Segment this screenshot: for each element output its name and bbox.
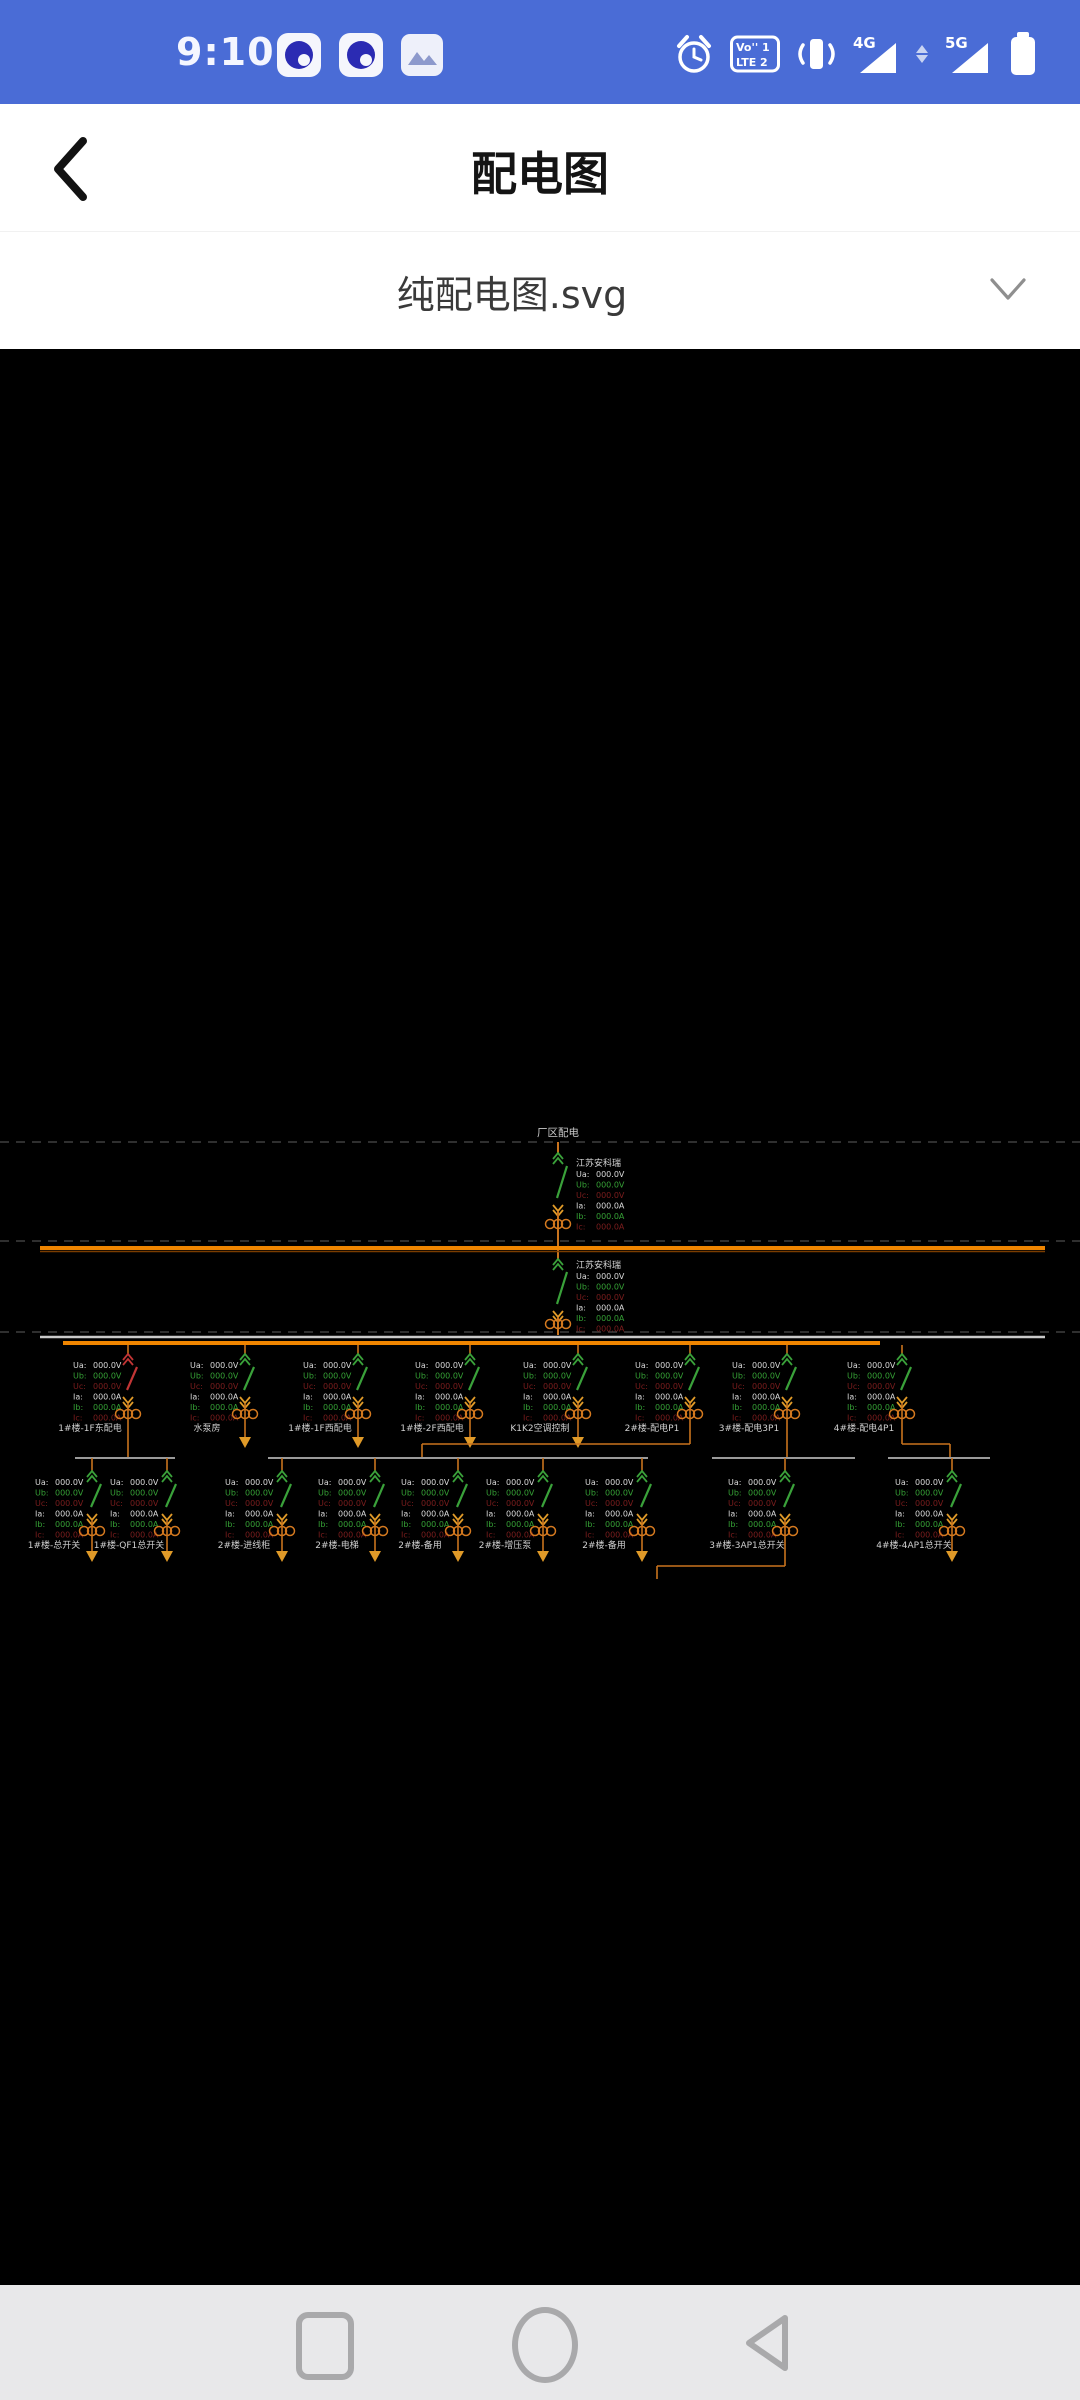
feeder-reading-key: Ic: (190, 1414, 199, 1423)
feeder-reading-key: Uc: (732, 1382, 745, 1391)
incomer-reading-value: 000.0A (596, 1314, 625, 1323)
app-header: 配电图 纯配电图.svg (0, 104, 1080, 349)
feeder-label: 1#楼-总开关 (28, 1539, 81, 1551)
incomer-reading-key: Ub: (576, 1283, 590, 1292)
feeder-reading-value: 000.0A (421, 1510, 450, 1519)
back-nav-button[interactable] (737, 2310, 797, 2376)
feeder-reading-key: Ia: (486, 1510, 496, 1519)
chevron-up-icon (780, 1471, 790, 1482)
feeder-reading-key: Ic: (486, 1531, 495, 1540)
source-title: 厂区配电 (537, 1126, 579, 1139)
feeder-label: 2#楼-增压泵 (479, 1539, 532, 1551)
feeder-reading-value: 000.0V (748, 1499, 777, 1508)
signal-5g-icon: 5G (944, 31, 992, 77)
chevron-up-icon (897, 1354, 907, 1365)
feeder-reading-key: Ub: (732, 1372, 746, 1381)
feeder-reading-key: Ib: (303, 1403, 313, 1412)
feeder-reading-key: Ua: (401, 1478, 414, 1487)
feeder-label: 1#楼-1F东配电 (58, 1422, 121, 1434)
flow-arrow-icon (464, 1437, 476, 1448)
incomer-reading-key: Ua: (576, 1170, 589, 1179)
feeder-reading-value: 000.0V (655, 1382, 684, 1391)
incomer-reading-key: Uc: (576, 1191, 589, 1200)
feeder-reading-key: Ua: (190, 1361, 203, 1370)
incomer-reading-value: 000.0V (596, 1191, 625, 1200)
chevron-up-icon (162, 1471, 172, 1482)
feeder-label: 3#楼-配电3P1 (719, 1422, 779, 1434)
feeder-reading-value: 000.0V (748, 1489, 777, 1498)
incomer-reading-value: 000.0V (596, 1181, 625, 1190)
feeder-reading-key: Ub: (303, 1372, 317, 1381)
incomer-reading-key: Ua: (576, 1272, 589, 1281)
feeder-reading-key: Ub: (318, 1489, 332, 1498)
feeder-reading-key: Ic: (415, 1414, 424, 1423)
feeder-reading-value: 000.0A (323, 1393, 352, 1402)
feeder-reading-key: Ub: (35, 1489, 49, 1498)
feeder-reading-key: Ub: (847, 1372, 861, 1381)
feeder-reading-value: 000.0V (506, 1478, 535, 1487)
chevron-up-icon (782, 1354, 792, 1365)
feeder-reading-key: Ib: (110, 1520, 120, 1529)
breaker-blade (469, 1367, 479, 1390)
feeder-reading-key: Uc: (523, 1382, 536, 1391)
incomer-reading-value: 000.0V (596, 1293, 625, 1302)
feeder-reading-value: 000.0V (338, 1489, 367, 1498)
breaker-blade (689, 1367, 699, 1390)
feeder-reading-key: Ic: (401, 1531, 410, 1540)
feeder-reading-key: Ia: (401, 1510, 411, 1519)
chevron-up-icon (637, 1471, 647, 1482)
feeder-reading-value: 000.0V (421, 1478, 450, 1487)
vibrate-icon (794, 31, 838, 77)
feeder-reading-value: 000.0V (655, 1372, 684, 1381)
feeder-reading-value: 000.0A (245, 1520, 274, 1529)
flow-arrow-icon (636, 1551, 648, 1562)
feeder-reading-value: 000.0V (752, 1361, 781, 1370)
feeder-reading-value: 000.0A (748, 1510, 777, 1519)
chevron-up-icon (87, 1471, 97, 1482)
incomer-reading-value: 000.0V (596, 1170, 625, 1179)
feeder-reading-key: Ic: (73, 1414, 82, 1423)
incomer-reading-value: 000.0V (596, 1283, 625, 1292)
flow-arrow-icon (239, 1437, 251, 1448)
feeder-reading-key: Ub: (190, 1372, 204, 1381)
feeder-reading-value: 000.0A (506, 1510, 535, 1519)
feeder-reading-value: 000.0A (55, 1510, 84, 1519)
feeder-label: 2#楼-电梯 (315, 1539, 359, 1551)
feeder-reading-key: Ua: (225, 1478, 238, 1487)
feeder-reading-key: Ib: (318, 1520, 328, 1529)
feeder-reading-value: 000.0A (752, 1393, 781, 1402)
diagram-viewer[interactable]: 厂区配电江苏安科瑞Ua:000.0VUb:000.0VUc:000.0VIa:0… (0, 349, 1080, 2285)
feeder-reading-value: 000.0V (55, 1478, 84, 1487)
feeder-reading-value: 000.0V (323, 1361, 352, 1370)
feeder-reading-value: 000.0A (435, 1393, 464, 1402)
signal-4g-icon: 4G (852, 31, 900, 77)
vendor-label: 江苏安科瑞 (576, 1157, 621, 1169)
incomer-reading-value: 000.0A (596, 1212, 625, 1221)
incomer-reading-key: Uc: (576, 1293, 589, 1302)
feeder-label: K1K2空调控制 (510, 1422, 569, 1434)
incomer-reading-key: Ia: (576, 1304, 586, 1313)
feeder-reading-value: 000.0A (338, 1510, 367, 1519)
feeder-reading-key: Ub: (73, 1372, 87, 1381)
home-button[interactable] (512, 2307, 578, 2383)
feeder-reading-key: Ic: (318, 1531, 327, 1540)
feeder-reading-key: Ic: (110, 1531, 119, 1540)
feeder-reading-key: Ib: (732, 1403, 742, 1412)
feeder-reading-key: Ub: (635, 1372, 649, 1381)
breaker-blade (166, 1484, 176, 1507)
feeder-reading-key: Ic: (523, 1414, 532, 1423)
feeder-reading-value: 000.0V (130, 1478, 159, 1487)
flow-arrow-icon (369, 1551, 381, 1562)
feeder-reading-value: 000.0A (748, 1520, 777, 1529)
chevron-up-icon (277, 1471, 287, 1482)
feeder-reading-key: Ib: (486, 1520, 496, 1529)
incomer-reading-key: Ib: (576, 1212, 586, 1221)
feeder-reading-key: Ua: (486, 1478, 499, 1487)
feeder-reading-value: 000.0V (543, 1361, 572, 1370)
feeder-reading-value: 000.0V (55, 1499, 84, 1508)
flow-arrow-icon (161, 1551, 173, 1562)
feeder-reading-key: Ub: (110, 1489, 124, 1498)
feeder-reading-value: 000.0V (915, 1489, 944, 1498)
feeder-reading-key: Ib: (728, 1520, 738, 1529)
feeder-reading-key: Uc: (401, 1499, 414, 1508)
feeder-reading-key: Ib: (73, 1403, 83, 1412)
feeder-reading-key: Ua: (73, 1361, 86, 1370)
file-selector-value: 纯配电图.svg (0, 264, 1052, 319)
feeder-reading-key: Uc: (728, 1499, 741, 1508)
feeder-reading-value: 000.0V (435, 1372, 464, 1381)
feeder-reading-key: Uc: (110, 1499, 123, 1508)
feeder-reading-key: Uc: (585, 1499, 598, 1508)
chevron-up-icon (123, 1354, 133, 1365)
feeder-reading-key: Ua: (523, 1361, 536, 1370)
feeder-reading-key: Ua: (415, 1361, 428, 1370)
feeder-reading-key: Ib: (585, 1520, 595, 1529)
feeder-reading-value: 000.0V (915, 1499, 944, 1508)
feeder-reading-value: 000.0V (130, 1499, 159, 1508)
feeder-reading-value: 000.0V (338, 1499, 367, 1508)
feeder-reading-key: Ub: (401, 1489, 415, 1498)
feeder-reading-key: Ia: (318, 1510, 328, 1519)
feeder-reading-key: Ia: (847, 1393, 857, 1402)
volte-icon: Vo'' 1 LTE 2 (730, 31, 780, 77)
feeder-reading-value: 000.0V (55, 1489, 84, 1498)
feeder-reading-value: 000.0A (93, 1393, 122, 1402)
feeder-reading-value: 000.0V (210, 1361, 239, 1370)
feeder-reading-value: 000.0V (93, 1382, 122, 1391)
breaker-blade (281, 1484, 291, 1507)
feeder-reading-key: Ia: (225, 1510, 235, 1519)
feeder-reading-value: 000.0V (210, 1372, 239, 1381)
feeder-reading-value: 000.0A (915, 1510, 944, 1519)
breaker-blade (374, 1484, 384, 1507)
feeder-reading-value: 000.0V (435, 1361, 464, 1370)
feeder-reading-key: Ic: (895, 1531, 904, 1540)
feeder-reading-key: Ic: (635, 1414, 644, 1423)
feeder-reading-key: Ia: (73, 1393, 83, 1402)
feeder-reading-value: 000.0A (915, 1520, 944, 1529)
feeder-reading-key: Uc: (486, 1499, 499, 1508)
feeder-reading-key: Ub: (585, 1489, 599, 1498)
feeder-reading-key: Ic: (585, 1531, 594, 1540)
feeder-reading-key: Ic: (847, 1414, 856, 1423)
recents-button[interactable] (296, 2312, 354, 2380)
feeder-reading-value: 000.0A (338, 1520, 367, 1529)
feeder-reading-key: Uc: (225, 1499, 238, 1508)
breaker-blade (951, 1484, 961, 1507)
breaker-blade (786, 1367, 796, 1390)
feeder-reading-key: Ua: (110, 1478, 123, 1487)
incomer-reading-key: Ia: (576, 1202, 586, 1211)
breaker-blade (577, 1367, 587, 1390)
breaker-blade (557, 1166, 567, 1198)
vendor-label: 江苏安科瑞 (576, 1259, 621, 1271)
feeder-reading-value: 000.0V (867, 1372, 896, 1381)
gallery-icon (400, 33, 444, 77)
feeder-reading-key: Ia: (110, 1510, 120, 1519)
feeder-reading-value: 000.0V (421, 1489, 450, 1498)
feeder-reading-key: Uc: (190, 1382, 203, 1391)
feeder-reading-key: Ib: (415, 1403, 425, 1412)
feeder-reading-value: 000.0V (867, 1361, 896, 1370)
feeder-reading-key: Ia: (415, 1393, 425, 1402)
feeder-reading-key: Ub: (225, 1489, 239, 1498)
feeder-reading-key: Ic: (732, 1414, 741, 1423)
feeder-reading-key: Ib: (225, 1520, 235, 1529)
feeder-reading-key: Ua: (585, 1478, 598, 1487)
feeder-label: 1#楼-2F西配电 (400, 1422, 463, 1434)
feeder-reading-key: Ia: (895, 1510, 905, 1519)
status-bar: 9:10 Vo'' 1 LTE 2 (0, 0, 1080, 104)
feeder-reading-key: Ub: (523, 1372, 537, 1381)
feeder-reading-value: 000.0V (605, 1499, 634, 1508)
feeder-reading-key: Ib: (35, 1520, 45, 1529)
flow-arrow-icon (276, 1551, 288, 1562)
feeder-reading-key: Ua: (35, 1478, 48, 1487)
incomer-reading-value: 000.0A (596, 1223, 625, 1232)
feeder-reading-key: Ia: (190, 1393, 200, 1402)
chevron-up-icon (240, 1354, 250, 1365)
incomer-reading-key: Ub: (576, 1181, 590, 1190)
feeder-reading-value: 000.0A (655, 1393, 684, 1402)
incomer-reading-value: 000.0A (596, 1325, 625, 1334)
feeder-reading-key: Ub: (895, 1489, 909, 1498)
feeder-reading-value: 000.0A (421, 1520, 450, 1529)
svg-text:4G: 4G (853, 34, 876, 52)
chevron-up-icon (353, 1354, 363, 1365)
feeder-reading-value: 000.0V (323, 1382, 352, 1391)
feeder-reading-key: Ic: (35, 1531, 44, 1540)
feeder-reading-value: 000.0V (752, 1382, 781, 1391)
feeder-reading-value: 000.0V (506, 1489, 535, 1498)
battery-icon (1006, 30, 1040, 78)
feeder-reading-value: 000.0V (506, 1499, 535, 1508)
feeder-reading-key: Ub: (415, 1372, 429, 1381)
feeder-reading-value: 000.0V (93, 1361, 122, 1370)
feeder-reading-key: Ib: (847, 1403, 857, 1412)
breaker-blade (641, 1484, 651, 1507)
file-selector[interactable]: 纯配电图.svg (0, 232, 1080, 349)
feeder-reading-key: Ua: (303, 1361, 316, 1370)
feeder-reading-value: 000.0V (543, 1382, 572, 1391)
android-nav-bar (0, 2285, 1080, 2400)
feeder-reading-key: Ib: (401, 1520, 411, 1529)
feeder-reading-key: Uc: (35, 1499, 48, 1508)
chevron-up-icon (553, 1153, 563, 1164)
flow-arrow-icon (86, 1551, 98, 1562)
feeder-reading-value: 000.0A (543, 1393, 572, 1402)
feeder-reading-key: Ib: (895, 1520, 905, 1529)
feeder-reading-key: Uc: (73, 1382, 86, 1391)
breaker-blade (457, 1484, 467, 1507)
feeder-label: 2#楼-备用 (398, 1539, 442, 1551)
breaker-blade (542, 1484, 552, 1507)
feeder-reading-value: 000.0V (210, 1382, 239, 1391)
feeder-reading-key: Ua: (732, 1361, 745, 1370)
feeder-reading-value: 000.0V (605, 1478, 634, 1487)
breaker-blade (901, 1367, 911, 1390)
feeder-reading-value: 000.0V (655, 1361, 684, 1370)
feeder-label: 4#楼-配电4P1 (834, 1422, 894, 1434)
feeder-label: 3#楼-3AP1总开关 (709, 1539, 785, 1551)
feeder-reading-value: 000.0V (93, 1372, 122, 1381)
feeder-reading-key: Ua: (847, 1361, 860, 1370)
feeder-reading-value: 000.0A (210, 1393, 239, 1402)
feeder-reading-value: 000.0V (748, 1478, 777, 1487)
chevron-up-icon (465, 1354, 475, 1365)
feeder-reading-key: Uc: (847, 1382, 860, 1391)
feeder-reading-value: 000.0A (506, 1520, 535, 1529)
incomer-reading-key: Ib: (576, 1314, 586, 1323)
feeder-reading-key: Uc: (318, 1499, 331, 1508)
feeder-reading-key: Ib: (635, 1403, 645, 1412)
feeder-reading-key: Ia: (728, 1510, 738, 1519)
svg-text:Vo'' 1: Vo'' 1 (736, 41, 770, 54)
feeder-reading-key: Ia: (732, 1393, 742, 1402)
page-title: 配电图 (0, 138, 1080, 204)
feeder-reading-value: 000.0V (421, 1499, 450, 1508)
feeder-reading-value: 000.0V (245, 1489, 274, 1498)
chevron-up-icon (538, 1471, 548, 1482)
feeder-reading-key: Ua: (318, 1478, 331, 1487)
breaker-blade (557, 1272, 567, 1304)
flow-arrow-icon (537, 1551, 549, 1562)
feeder-reading-key: Ib: (190, 1403, 200, 1412)
feeder-reading-key: Ic: (303, 1414, 312, 1423)
chevron-up-icon (947, 1471, 957, 1482)
feeder-reading-value: 000.0V (245, 1478, 274, 1487)
feeder-reading-value: 000.0A (130, 1520, 159, 1529)
feeder-reading-value: 000.0A (55, 1520, 84, 1529)
feeder-reading-key: Ua: (895, 1478, 908, 1487)
feeder-reading-key: Ub: (486, 1489, 500, 1498)
chevron-up-icon (573, 1354, 583, 1365)
feeder-reading-key: Ic: (728, 1531, 737, 1540)
feeder-reading-value: 000.0V (245, 1499, 274, 1508)
alarm-icon (672, 31, 716, 77)
clock-text: 9:10 (176, 30, 275, 74)
feeder-label: 2#楼-进线柜 (218, 1539, 271, 1551)
breaker-blade (91, 1484, 101, 1507)
svg-text:5G: 5G (945, 34, 968, 52)
feeder-reading-value: 000.0V (605, 1489, 634, 1498)
incomer-reading-value: 000.0A (596, 1304, 625, 1313)
breaker-blade (244, 1367, 254, 1390)
chevron-up-icon (685, 1354, 695, 1365)
feeder-reading-key: Uc: (635, 1382, 648, 1391)
feeder-reading-value: 000.0V (435, 1382, 464, 1391)
chevron-down-icon (988, 276, 1028, 302)
feeder-reading-key: Ib: (523, 1403, 533, 1412)
feeder-reading-value: 000.0A (867, 1393, 896, 1402)
feeder-reading-value: 000.0V (915, 1478, 944, 1487)
feeder-label: 1#楼-1F西配电 (288, 1422, 351, 1434)
feeder-reading-key: Uc: (303, 1382, 316, 1391)
flow-arrow-icon (352, 1437, 364, 1448)
incomer-reading-value: 000.0V (596, 1272, 625, 1281)
feeder-label: 2#楼-备用 (582, 1539, 626, 1551)
feeder-reading-value: 000.0V (338, 1478, 367, 1487)
breaker-blade (784, 1484, 794, 1507)
feeder-reading-key: Ia: (35, 1510, 45, 1519)
incomer-reading-key: Ic: (576, 1223, 585, 1232)
feeder-reading-value: 000.0V (867, 1382, 896, 1391)
feeder-reading-value: 000.0A (605, 1510, 634, 1519)
feeder-reading-key: Ic: (225, 1531, 234, 1540)
chevron-up-icon (553, 1259, 563, 1270)
feeder-reading-value: 000.0V (323, 1372, 352, 1381)
data-direction-icon (914, 31, 930, 77)
feeder-reading-key: Ua: (635, 1361, 648, 1370)
incomer-reading-key: Ic: (576, 1325, 585, 1334)
feeder-reading-key: Uc: (895, 1499, 908, 1508)
feeder-label: 水泵房 (193, 1422, 220, 1434)
feeder-label: 4#楼-4AP1总开关 (876, 1539, 952, 1551)
feeder-reading-key: Ua: (728, 1478, 741, 1487)
flow-arrow-icon (572, 1437, 584, 1448)
feeder-reading-key: Uc: (415, 1382, 428, 1391)
app-notification-icon (276, 32, 322, 78)
feeder-reading-value: 000.0A (245, 1510, 274, 1519)
feeder-reading-key: Ia: (635, 1393, 645, 1402)
feeder-reading-value: 000.0A (605, 1520, 634, 1529)
feeder-reading-key: Ia: (523, 1393, 533, 1402)
feeder-reading-value: 000.0V (543, 1372, 572, 1381)
feeder-reading-value: 000.0V (752, 1372, 781, 1381)
flow-arrow-icon (452, 1551, 464, 1562)
svg-text:LTE 2: LTE 2 (736, 56, 768, 69)
feeder-reading-key: Ia: (585, 1510, 595, 1519)
chevron-up-icon (370, 1471, 380, 1482)
app-notification-icon (338, 32, 384, 78)
feeder-reading-value: 000.0V (130, 1489, 159, 1498)
feeder-reading-key: Ia: (303, 1393, 313, 1402)
feeder-label: 1#楼-QF1总开关 (94, 1539, 165, 1551)
breaker-blade (357, 1367, 367, 1390)
chevron-up-icon (453, 1471, 463, 1482)
feeder-reading-key: Ub: (728, 1489, 742, 1498)
feeder-label: 2#楼-配电P1 (625, 1422, 680, 1434)
incomer-reading-value: 000.0A (596, 1202, 625, 1211)
breaker-blade (127, 1367, 137, 1390)
flow-arrow-icon (946, 1551, 958, 1562)
distribution-diagram-svg[interactable]: 厂区配电江苏安科瑞Ua:000.0VUb:000.0VUc:000.0VIa:0… (0, 1100, 1080, 1600)
feeder-reading-value: 000.0A (130, 1510, 159, 1519)
